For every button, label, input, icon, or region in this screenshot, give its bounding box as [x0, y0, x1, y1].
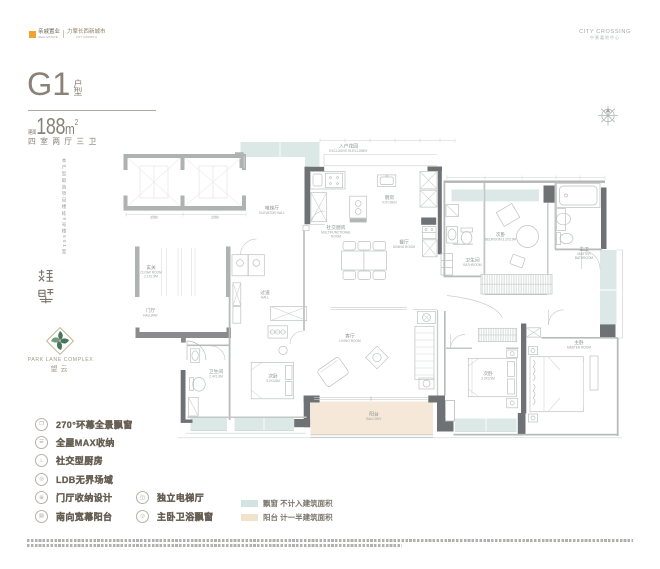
svg-text:2750: 2750: [150, 216, 157, 220]
svg-text:2.1X1.5M: 2.1X1.5M: [144, 275, 158, 279]
svg-text:HALLWAY: HALLWAY: [143, 314, 159, 318]
svg-text:EXCLUSIVE ELEV.LOBBY: EXCLUSIVE ELEV.LOBBY: [329, 149, 368, 153]
svg-text:2.4X1.6M: 2.4X1.6M: [209, 375, 223, 379]
svg-text:BALCONY: BALCONY: [366, 417, 382, 421]
svg-text:3.2X3.6M: 3.2X3.6M: [266, 379, 280, 383]
svg-text:HALL: HALL: [261, 296, 269, 300]
svg-text:ROOM: ROOM: [331, 235, 341, 239]
svg-text:2750: 2750: [211, 216, 218, 220]
svg-text:KITCHEN: KITCHEN: [383, 201, 398, 205]
svg-text:MASTER ROOM: MASTER ROOM: [567, 346, 591, 350]
svg-text:ELEVATOR HALL: ELEVATOR HALL: [259, 211, 285, 215]
svg-text:BATHROOM: BATHROOM: [463, 263, 482, 267]
svg-text:BEDROOM 3.2X3.9M: BEDROOM 3.2X3.9M: [485, 238, 516, 242]
svg-text:3.3X3.9M: 3.3X3.9M: [481, 377, 495, 381]
svg-text:BATHROOM: BATHROOM: [575, 256, 594, 260]
svg-text:DINING ROOM: DINING ROOM: [393, 245, 415, 249]
svg-text:LIVING ROOM: LIVING ROOM: [339, 339, 361, 343]
